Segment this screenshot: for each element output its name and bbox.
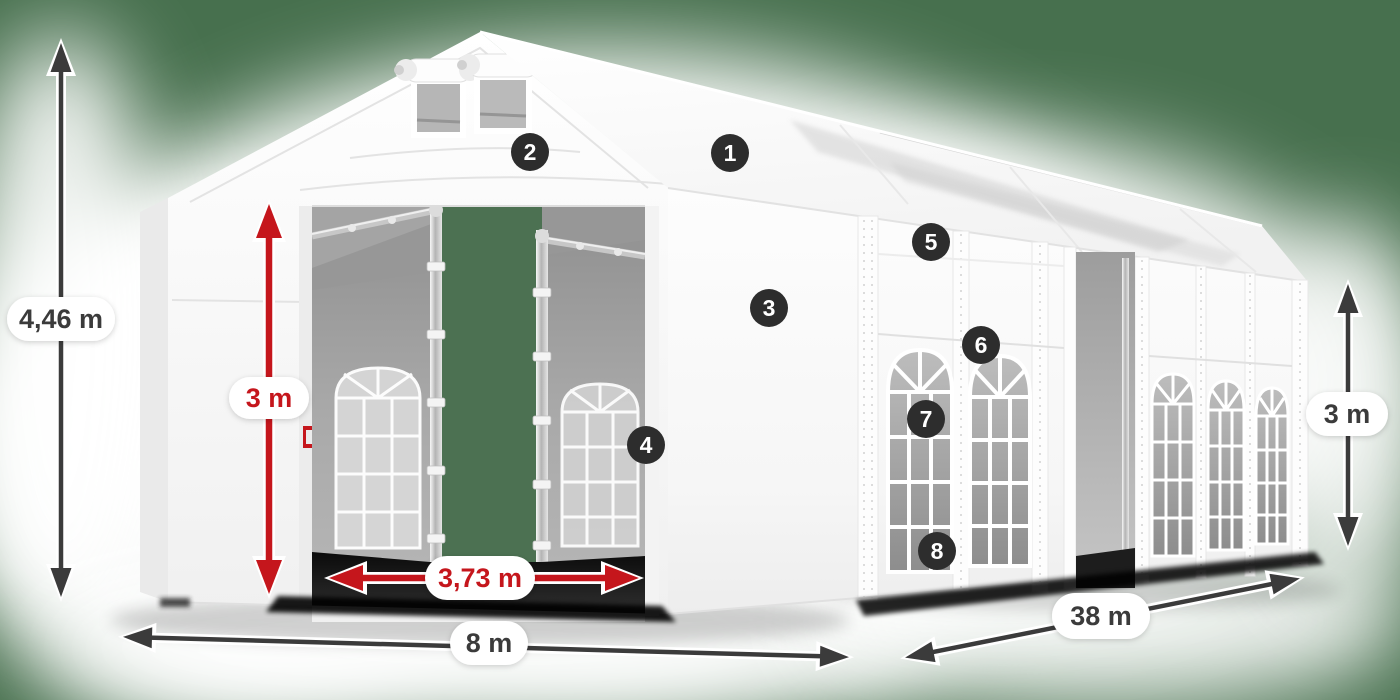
feature-marker-1[interactable]: 1 [711,134,749,172]
tent-left-wall [140,198,168,602]
svg-text:3 m: 3 m [1324,399,1371,429]
interior-window-right [562,383,638,546]
svg-text:3 m: 3 m [246,383,293,413]
side-window-3 [1152,374,1194,556]
total-height-label: 4,46 m [7,297,115,341]
svg-text:3[interactable]: 3 [763,295,776,321]
svg-text:8 m: 8 m [466,628,513,658]
interior-window-left [336,367,420,548]
feature-marker-7[interactable]: 7 [907,400,945,438]
side-height-label: 3 m [1306,392,1388,436]
door-jamb-right [645,206,659,616]
feature-marker-5[interactable]: 5 [912,223,950,261]
feature-marker-8[interactable]: 8 [918,532,956,570]
side-length-label: 38 m [1052,593,1150,639]
doorway-outdoor-view [438,206,542,568]
svg-text:4[interactable]: 4 [640,432,653,458]
svg-text:2[interactable]: 2 [524,139,537,165]
svg-text:5[interactable]: 5 [925,229,938,255]
side-window-4 [1208,381,1244,550]
feature-marker-6[interactable]: 6 [962,326,1000,364]
svg-text:8[interactable]: 8 [931,538,944,564]
svg-text:3,73 m: 3,73 m [438,563,522,593]
tent-dimension-diagram: 1 2 3 4 5 6 7 8 [0,0,1400,700]
entrance-width-label: 3,73 m [425,556,535,600]
side-window-5 [1256,388,1288,544]
svg-text:7[interactable]: 7 [920,406,933,432]
feature-marker-2[interactable]: 2 [511,133,549,171]
svg-text:38 m: 38 m [1070,601,1132,631]
svg-text:1[interactable]: 1 [724,140,737,166]
feature-marker-3[interactable]: 3 [750,289,788,327]
side-passage-opening [1076,252,1135,588]
feature-marker-4[interactable]: 4 [627,426,665,464]
svg-text:6[interactable]: 6 [975,332,988,358]
front-width-label: 8 m [450,621,528,665]
svg-text:4,46 m: 4,46 m [19,304,103,334]
inner-height-label: 3 m [229,377,309,419]
side-window-2 [970,356,1030,566]
